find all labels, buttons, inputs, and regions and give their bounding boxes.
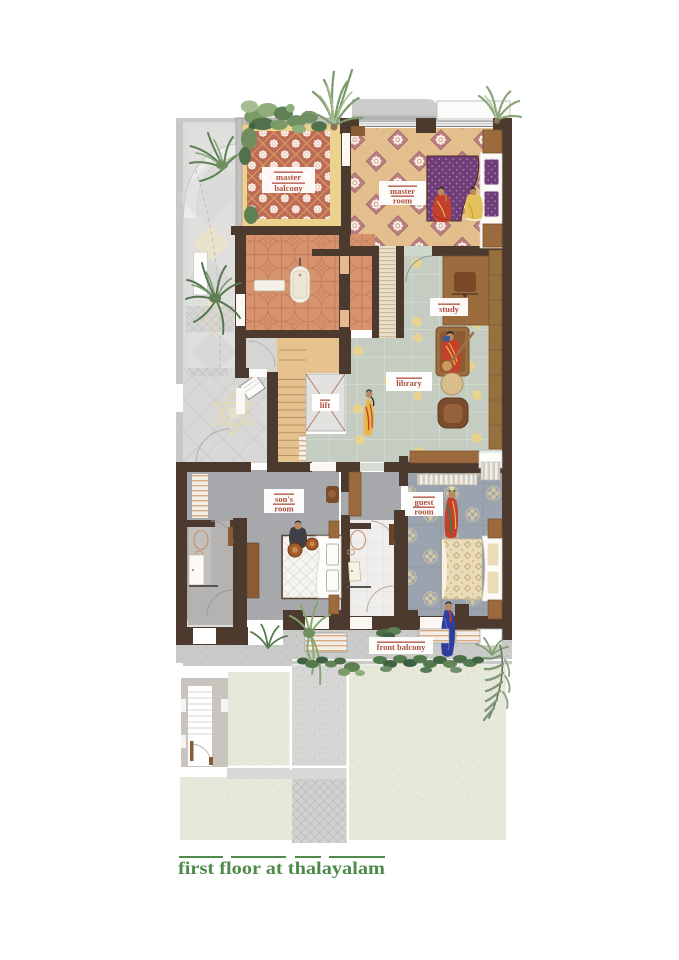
svg-text:guest: guest: [415, 497, 434, 507]
svg-text:lift: lift: [320, 400, 331, 410]
svg-text:son's: son's: [275, 494, 294, 504]
svg-text:room: room: [393, 196, 412, 206]
svg-text:first floor at thalayalam: first floor at thalayalam: [178, 858, 385, 878]
svg-text:master: master: [390, 186, 415, 196]
svg-text:balcony: balcony: [274, 183, 303, 193]
svg-text:study: study: [439, 304, 460, 314]
svg-text:library: library: [396, 378, 422, 388]
svg-text:master: master: [276, 172, 301, 182]
svg-text:front balcony: front balcony: [377, 642, 426, 652]
svg-text:room: room: [414, 507, 433, 517]
svg-text:room: room: [274, 504, 293, 514]
